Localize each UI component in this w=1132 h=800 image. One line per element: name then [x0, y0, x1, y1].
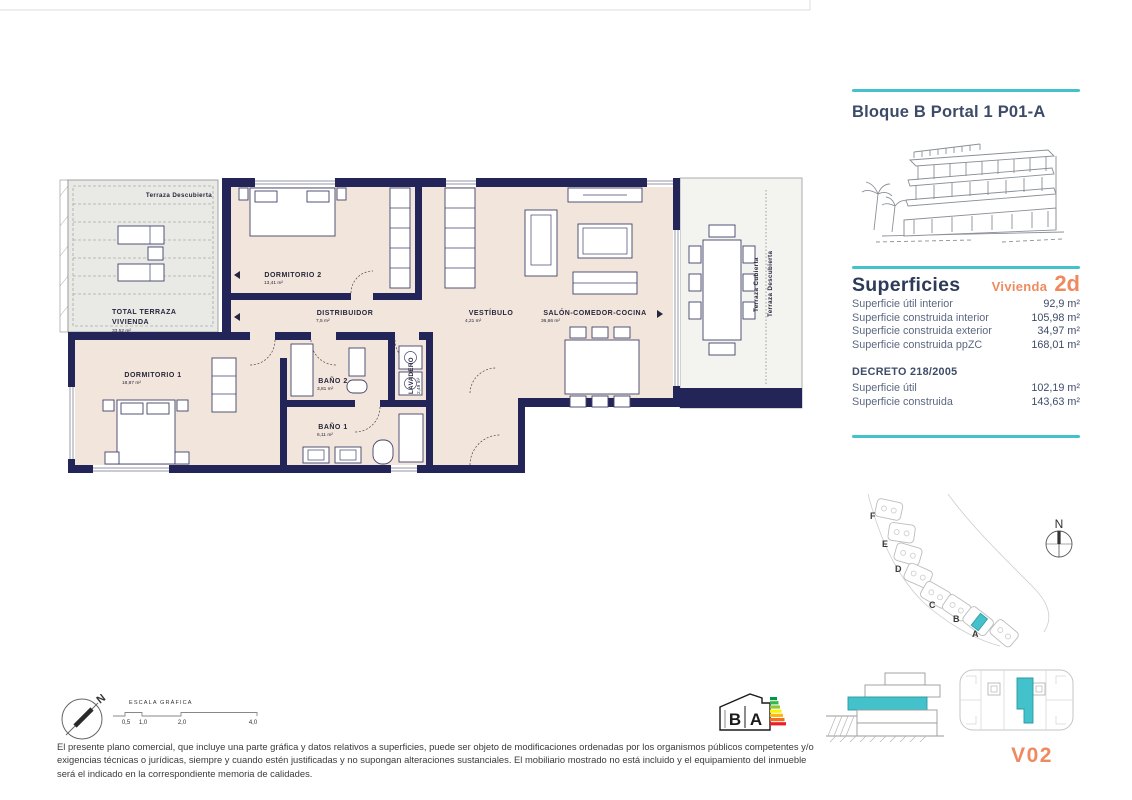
superficies-row: Superficie útil interior92,9 m²	[852, 298, 1080, 312]
superficies-row: Superficie construida exterior34,97 m²	[852, 325, 1080, 339]
site-plan: F E D C B A N	[848, 492, 1093, 654]
teal-rule-mid	[852, 266, 1080, 269]
svg-text:1,0: 1,0	[139, 720, 148, 726]
terrace-open-right-label: Terraza Descubierta	[767, 251, 774, 317]
vestibulo-label: VESTÍBULO	[469, 308, 514, 317]
bano2-label: BAÑO 2	[318, 376, 347, 385]
energy-scale-bars	[770, 697, 786, 725]
energy-letter-a: A	[750, 710, 762, 729]
floor-plan: Terraza Descubierta TOTAL TERRAZA VIVIEN…	[55, 162, 815, 487]
terrace-covered-label: Terraza Cubierta	[753, 257, 760, 312]
wardrobe-dormitorio1	[212, 358, 236, 412]
plan-sheet: { "colors": { "teal": "#43c2cb", "orange…	[0, 0, 1132, 800]
energy-rating-icon: B A	[716, 690, 786, 740]
svg-text:A: A	[972, 629, 979, 639]
svg-text:2,0: 2,0	[178, 720, 187, 726]
teal-rule-top	[852, 89, 1080, 92]
bano1-area: 6,11 m²	[317, 432, 333, 438]
lavadero-area: 2,49 m²	[416, 377, 422, 394]
compass-rose: N	[52, 694, 114, 742]
svg-text:0,5: 0,5	[122, 720, 131, 726]
terrace-left-label: Terraza Descubierta	[146, 192, 212, 199]
dormitorio1-label: DORMITORIO 1	[124, 372, 181, 379]
superficies-row: Superficie construida ppZC168,01 m²	[852, 339, 1080, 353]
bano1-label: BAÑO 1	[318, 422, 347, 431]
lavadero-label: LAVADERO	[408, 357, 415, 394]
unit-code: V02	[1002, 744, 1062, 768]
superficies-row: Superficie construida143,63 m²	[852, 396, 1080, 410]
legal-disclaimer: El presente plano comercial, que incluye…	[57, 740, 815, 780]
scale-bar: ESCALA GRÁFICA 0,5 1,0 2,0 4,0	[110, 694, 270, 728]
section-diagram	[826, 670, 948, 742]
energy-letter-b: B	[729, 710, 741, 729]
building-sketch	[852, 132, 1080, 258]
svg-text:C: C	[929, 600, 936, 610]
terrace-left: Terraza Descubierta TOTAL TERRAZA VIVIEN…	[60, 180, 218, 334]
salon-label: SALÓN-COMEDOR-COCINA	[543, 308, 646, 317]
bed-dormitorio2	[239, 188, 346, 236]
svg-text:4,0: 4,0	[249, 720, 258, 726]
dormitorio2-label: DORMITORIO 2	[264, 272, 321, 279]
salon-area: 36,66 m²	[541, 318, 560, 324]
dormitorio1-area: 18,87 m²	[122, 380, 141, 386]
svg-text:D: D	[895, 564, 902, 574]
teal-rule-bottom	[852, 435, 1080, 438]
closet-vestibulo	[445, 188, 475, 288]
superficies-row: Superficie útil102,19 m²	[852, 382, 1080, 396]
decreto-rows: Superficie útil102,19 m² Superficie cons…	[852, 382, 1080, 409]
vivienda-label: Vivienda	[992, 279, 1048, 294]
scale-title: ESCALA GRÁFICA	[129, 699, 193, 706]
vivienda-code: 2d	[1054, 271, 1080, 297]
bano2-area: 3,81 m²	[317, 386, 334, 392]
svg-text:F: F	[870, 511, 876, 521]
page-title: Bloque B Portal 1 P01-A	[852, 103, 1045, 122]
north-label: N	[1055, 517, 1064, 531]
total-terraza-line1: TOTAL TERRAZA	[112, 309, 176, 316]
distribuidor-label: DISTRIBUIDOR	[317, 310, 374, 317]
superficies-header: Superficies Vivienda 2d	[852, 271, 1080, 297]
vestibulo-area: 4,21 m²	[465, 318, 482, 324]
sofa	[525, 210, 557, 276]
highlighted-floor	[848, 697, 927, 710]
total-terraza-line2: VIVIENDA	[112, 319, 149, 326]
distribuidor-area: 7,5 m²	[316, 318, 330, 324]
floor-key-diagram	[946, 664, 1096, 742]
wardrobe-dormitorio2	[390, 188, 410, 288]
svg-text:E: E	[882, 539, 888, 549]
superficies-row: Superficie construida interior105,98 m²	[852, 312, 1080, 326]
terrace-right: Terraza Cubierta Terraza Descubierta	[680, 178, 802, 408]
terrace-planter-wall	[680, 388, 802, 408]
decreto-title: DECRETO 218/2005	[852, 366, 957, 378]
superficies-rows: Superficie útil interior92,9 m² Superfic…	[852, 298, 1080, 352]
north-arrow: N	[1046, 517, 1072, 557]
svg-text:B: B	[953, 614, 960, 624]
dormitorio2-area: 13,41 m²	[264, 280, 283, 286]
superficies-title: Superficies	[852, 274, 960, 297]
